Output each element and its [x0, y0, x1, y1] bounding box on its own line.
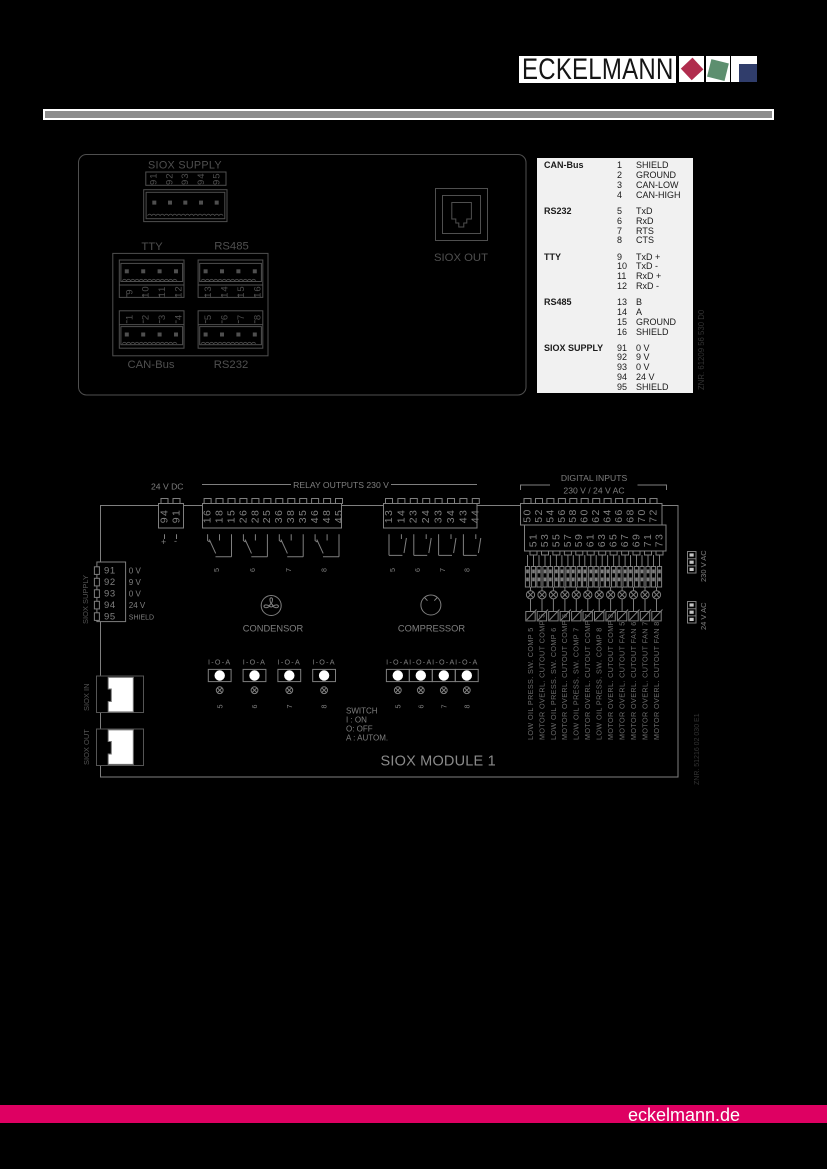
svg-text:91: 91: [170, 509, 182, 523]
svg-text:24: 24: [420, 509, 432, 523]
svg-text:24 V DC: 24 V DC: [151, 482, 183, 492]
svg-text:16: 16: [202, 509, 214, 523]
svg-text:93: 93: [180, 172, 191, 185]
svg-text:94: 94: [158, 509, 170, 523]
svg-text:7: 7: [438, 568, 447, 572]
svg-text:14: 14: [395, 509, 407, 523]
svg-text:LOW OIL PRESS. SW. COMP 7: LOW OIL PRESS. SW. COMP 7: [572, 627, 581, 740]
svg-text:91: 91: [104, 565, 116, 576]
svg-text:SIOX MODULE 1: SIOX MODULE 1: [381, 754, 496, 770]
svg-text:230 V / 24 V AC: 230 V / 24 V AC: [563, 486, 624, 496]
svg-text:7: 7: [439, 705, 448, 709]
svg-text:14: 14: [220, 285, 231, 298]
svg-text:34: 34: [445, 509, 457, 523]
svg-text:2: 2: [141, 314, 152, 320]
svg-text:LOW OIL PRESS. SW. COMP 8: LOW OIL PRESS. SW. COMP 8: [595, 627, 604, 740]
svg-text:12: 12: [174, 285, 185, 298]
svg-text:I-O-A: I-O-A: [243, 658, 266, 667]
svg-text:95: 95: [212, 172, 223, 185]
svg-text:SIOX SUPPLY: SIOX SUPPLY: [81, 575, 90, 624]
svg-text:COMPRESSOR: COMPRESSOR: [398, 624, 465, 634]
svg-text:8: 8: [320, 568, 329, 572]
svg-text:MOTOR OVERL. CUTOUT FAN 5: MOTOR OVERL. CUTOUT FAN 5: [618, 621, 627, 740]
svg-text:MOTOR OVERL. CUTOUT COMP 7: MOTOR OVERL. CUTOUT COMP 7: [583, 614, 592, 740]
svg-text:-: -: [174, 536, 177, 546]
svg-text:6: 6: [248, 568, 257, 572]
svg-text:63: 63: [596, 533, 608, 547]
svg-text:68: 68: [624, 508, 636, 522]
svg-text:8: 8: [462, 705, 471, 709]
svg-text:+: +: [161, 537, 166, 547]
svg-text:67: 67: [619, 533, 631, 547]
svg-text:18: 18: [213, 509, 225, 523]
svg-text:11: 11: [157, 286, 168, 298]
svg-text:SIOX SUPPLY: SIOX SUPPLY: [148, 160, 222, 172]
svg-text:93: 93: [104, 588, 116, 599]
svg-text:7: 7: [236, 314, 247, 320]
svg-text:71: 71: [642, 533, 654, 547]
svg-text:70: 70: [636, 508, 648, 522]
svg-text:7: 7: [284, 568, 293, 572]
svg-text:94: 94: [196, 172, 207, 185]
svg-text:15: 15: [236, 285, 247, 298]
svg-text:A : AUTOM.: A : AUTOM.: [346, 734, 388, 743]
svg-text:69: 69: [630, 533, 642, 547]
svg-text:50: 50: [521, 508, 533, 522]
svg-text:55: 55: [550, 533, 562, 547]
svg-text:O: OFF: O: OFF: [346, 725, 373, 734]
svg-text:9: 9: [124, 288, 135, 294]
svg-text:I-O-A: I-O-A: [278, 658, 301, 667]
svg-text:MOTOR OVERL. CUTOUT COMP 8: MOTOR OVERL. CUTOUT COMP 8: [606, 614, 615, 740]
svg-text:23: 23: [408, 509, 420, 523]
svg-text:DIGITAL INPUTS: DIGITAL INPUTS: [561, 473, 628, 483]
svg-text:24 V: 24 V: [129, 601, 146, 610]
svg-text:I-O-A: I-O-A: [455, 658, 478, 667]
svg-text:I-O-A: I-O-A: [432, 658, 455, 667]
svg-text:ECKELMANN: ECKELMANN: [522, 56, 674, 84]
svg-text:7: 7: [285, 705, 294, 709]
svg-text:CAN-Bus: CAN-Bus: [127, 359, 174, 371]
svg-text:5: 5: [215, 705, 224, 709]
svg-text:56: 56: [556, 508, 568, 522]
svg-text:MOTOR OVERL. CUTOUT FAN 6: MOTOR OVERL. CUTOUT FAN 6: [629, 621, 638, 740]
svg-text:60: 60: [579, 508, 591, 522]
svg-text:13: 13: [203, 285, 214, 298]
svg-text:6: 6: [416, 705, 425, 709]
svg-text:5: 5: [393, 705, 402, 709]
svg-text:91: 91: [149, 172, 160, 185]
svg-text:48: 48: [321, 509, 333, 523]
svg-text:CONDENSOR: CONDENSOR: [243, 624, 304, 634]
svg-text:0 V: 0 V: [129, 566, 142, 575]
svg-text:5: 5: [212, 568, 221, 572]
svg-text:51: 51: [527, 533, 539, 547]
svg-text:I : ON: I : ON: [346, 716, 367, 725]
svg-text:64: 64: [602, 508, 614, 522]
svg-text:SIOX OUT: SIOX OUT: [434, 252, 488, 264]
svg-text:13: 13: [383, 509, 395, 523]
svg-text:5: 5: [388, 568, 397, 572]
svg-text:45: 45: [333, 509, 345, 523]
svg-text:10: 10: [141, 285, 152, 298]
svg-text:58: 58: [567, 508, 579, 522]
svg-text:4: 4: [174, 314, 185, 320]
svg-text:43: 43: [457, 509, 469, 523]
svg-text:8: 8: [320, 705, 329, 709]
svg-text:RELAY OUTPUTS 230 V: RELAY OUTPUTS 230 V: [293, 480, 389, 490]
svg-text:RS232: RS232: [214, 359, 249, 371]
svg-text:6: 6: [250, 705, 259, 709]
svg-text:65: 65: [608, 533, 620, 547]
svg-text:SIOX IN: SIOX IN: [82, 683, 91, 711]
svg-text:3: 3: [157, 314, 168, 320]
svg-text:92: 92: [104, 577, 116, 588]
svg-text:1: 1: [124, 314, 135, 320]
svg-text:57: 57: [562, 533, 574, 547]
svg-text:92: 92: [164, 172, 175, 185]
svg-text:59: 59: [573, 533, 585, 547]
svg-text:95: 95: [104, 611, 116, 622]
svg-text:TTY: TTY: [141, 241, 163, 253]
svg-text:5: 5: [203, 314, 214, 320]
svg-text:MOTOR OVERL. CUTOUT FAN 8: MOTOR OVERL. CUTOUT FAN 8: [652, 621, 661, 740]
svg-text:0 V: 0 V: [129, 589, 142, 598]
svg-text:6: 6: [220, 314, 231, 320]
svg-text:44: 44: [470, 509, 482, 523]
svg-text:LOW OIL PRESS. SW. COMP 6: LOW OIL PRESS. SW. COMP 6: [549, 627, 558, 740]
svg-text:MOTOR OVERL. CUTOUT COMP 6: MOTOR OVERL. CUTOUT COMP 6: [560, 614, 569, 740]
svg-text:9 V: 9 V: [129, 578, 142, 587]
svg-text:8: 8: [463, 568, 472, 572]
svg-text:52: 52: [533, 508, 545, 522]
svg-text:25: 25: [261, 509, 273, 523]
svg-text:26: 26: [237, 509, 249, 523]
svg-text:53: 53: [539, 533, 551, 547]
svg-text:I-O-A: I-O-A: [208, 658, 231, 667]
svg-text:I-O-A: I-O-A: [409, 658, 432, 667]
svg-text:66: 66: [613, 508, 625, 522]
svg-text:54: 54: [544, 508, 556, 522]
svg-text:15: 15: [225, 509, 237, 523]
svg-text:72: 72: [647, 508, 659, 522]
svg-text:24 V AC: 24 V AC: [699, 602, 708, 630]
svg-text:73: 73: [653, 533, 665, 547]
svg-text:62: 62: [590, 508, 602, 522]
svg-text:61: 61: [585, 533, 597, 547]
svg-text:46: 46: [309, 509, 321, 523]
svg-text:RS485: RS485: [214, 241, 249, 253]
svg-text:SWITCH: SWITCH: [346, 707, 378, 716]
svg-text:SHIELD: SHIELD: [129, 614, 154, 621]
svg-text:8: 8: [252, 314, 263, 320]
svg-text:16: 16: [252, 285, 263, 298]
svg-text:I-O-A: I-O-A: [312, 658, 335, 667]
svg-text:I-O-A: I-O-A: [386, 658, 409, 667]
svg-text:28: 28: [249, 509, 261, 523]
svg-text:MOTOR OVERL. CUTOUT FAN 7: MOTOR OVERL. CUTOUT FAN 7: [640, 621, 649, 740]
svg-text:MOTOR OVERL. CUTOUT COMP 5: MOTOR OVERL. CUTOUT COMP 5: [537, 614, 546, 740]
svg-text:230 V AC: 230 V AC: [699, 550, 708, 582]
svg-text:35: 35: [297, 509, 309, 523]
svg-text:38: 38: [285, 509, 297, 523]
svg-text:33: 33: [433, 509, 445, 523]
svg-text:SIOX OUT: SIOX OUT: [82, 729, 91, 765]
svg-text:6: 6: [413, 568, 422, 572]
svg-text:94: 94: [104, 600, 116, 611]
svg-text:36: 36: [273, 509, 285, 523]
svg-text:LOW OIL PRESS. SW. COMP 5: LOW OIL PRESS. SW. COMP 5: [526, 627, 535, 740]
